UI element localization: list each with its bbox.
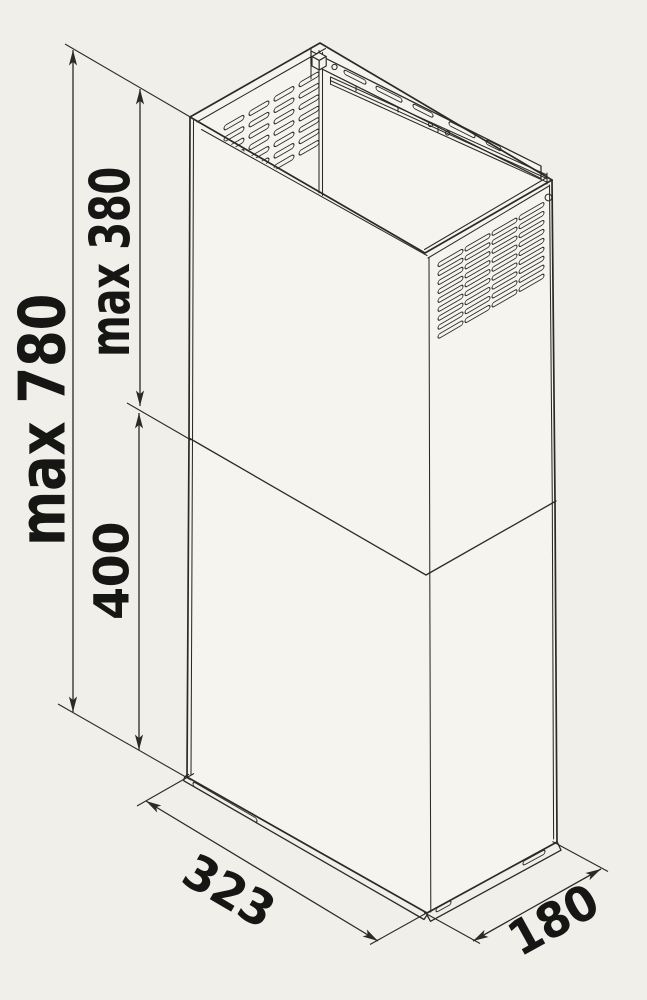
extension-line bbox=[424, 913, 480, 944]
chimney-drawing bbox=[184, 43, 561, 921]
extension-line bbox=[553, 842, 609, 872]
dimension-upper-section: max 380 bbox=[78, 89, 191, 440]
technical-drawing: max 780 max 380 400 323 180 bbox=[0, 0, 647, 1000]
dimension-label-total-height: max 780 bbox=[7, 294, 81, 546]
dimension-label-base-depth: 180 bbox=[499, 873, 608, 968]
dimension-label-lower-section: 400 bbox=[85, 522, 141, 620]
extension-line bbox=[58, 704, 191, 780]
dimension-lower-section: 400 bbox=[85, 413, 141, 750]
extension-line bbox=[137, 774, 194, 807]
dimension-label-base-width: 323 bbox=[173, 843, 284, 940]
extension-line bbox=[65, 44, 192, 118]
chimney-silhouette bbox=[187, 43, 557, 913]
dimension-label-upper-section: max 380 bbox=[78, 167, 142, 357]
extension-line bbox=[370, 911, 431, 945]
extension-line bbox=[127, 403, 191, 440]
dimension-total-height: max 780 bbox=[7, 44, 193, 780]
